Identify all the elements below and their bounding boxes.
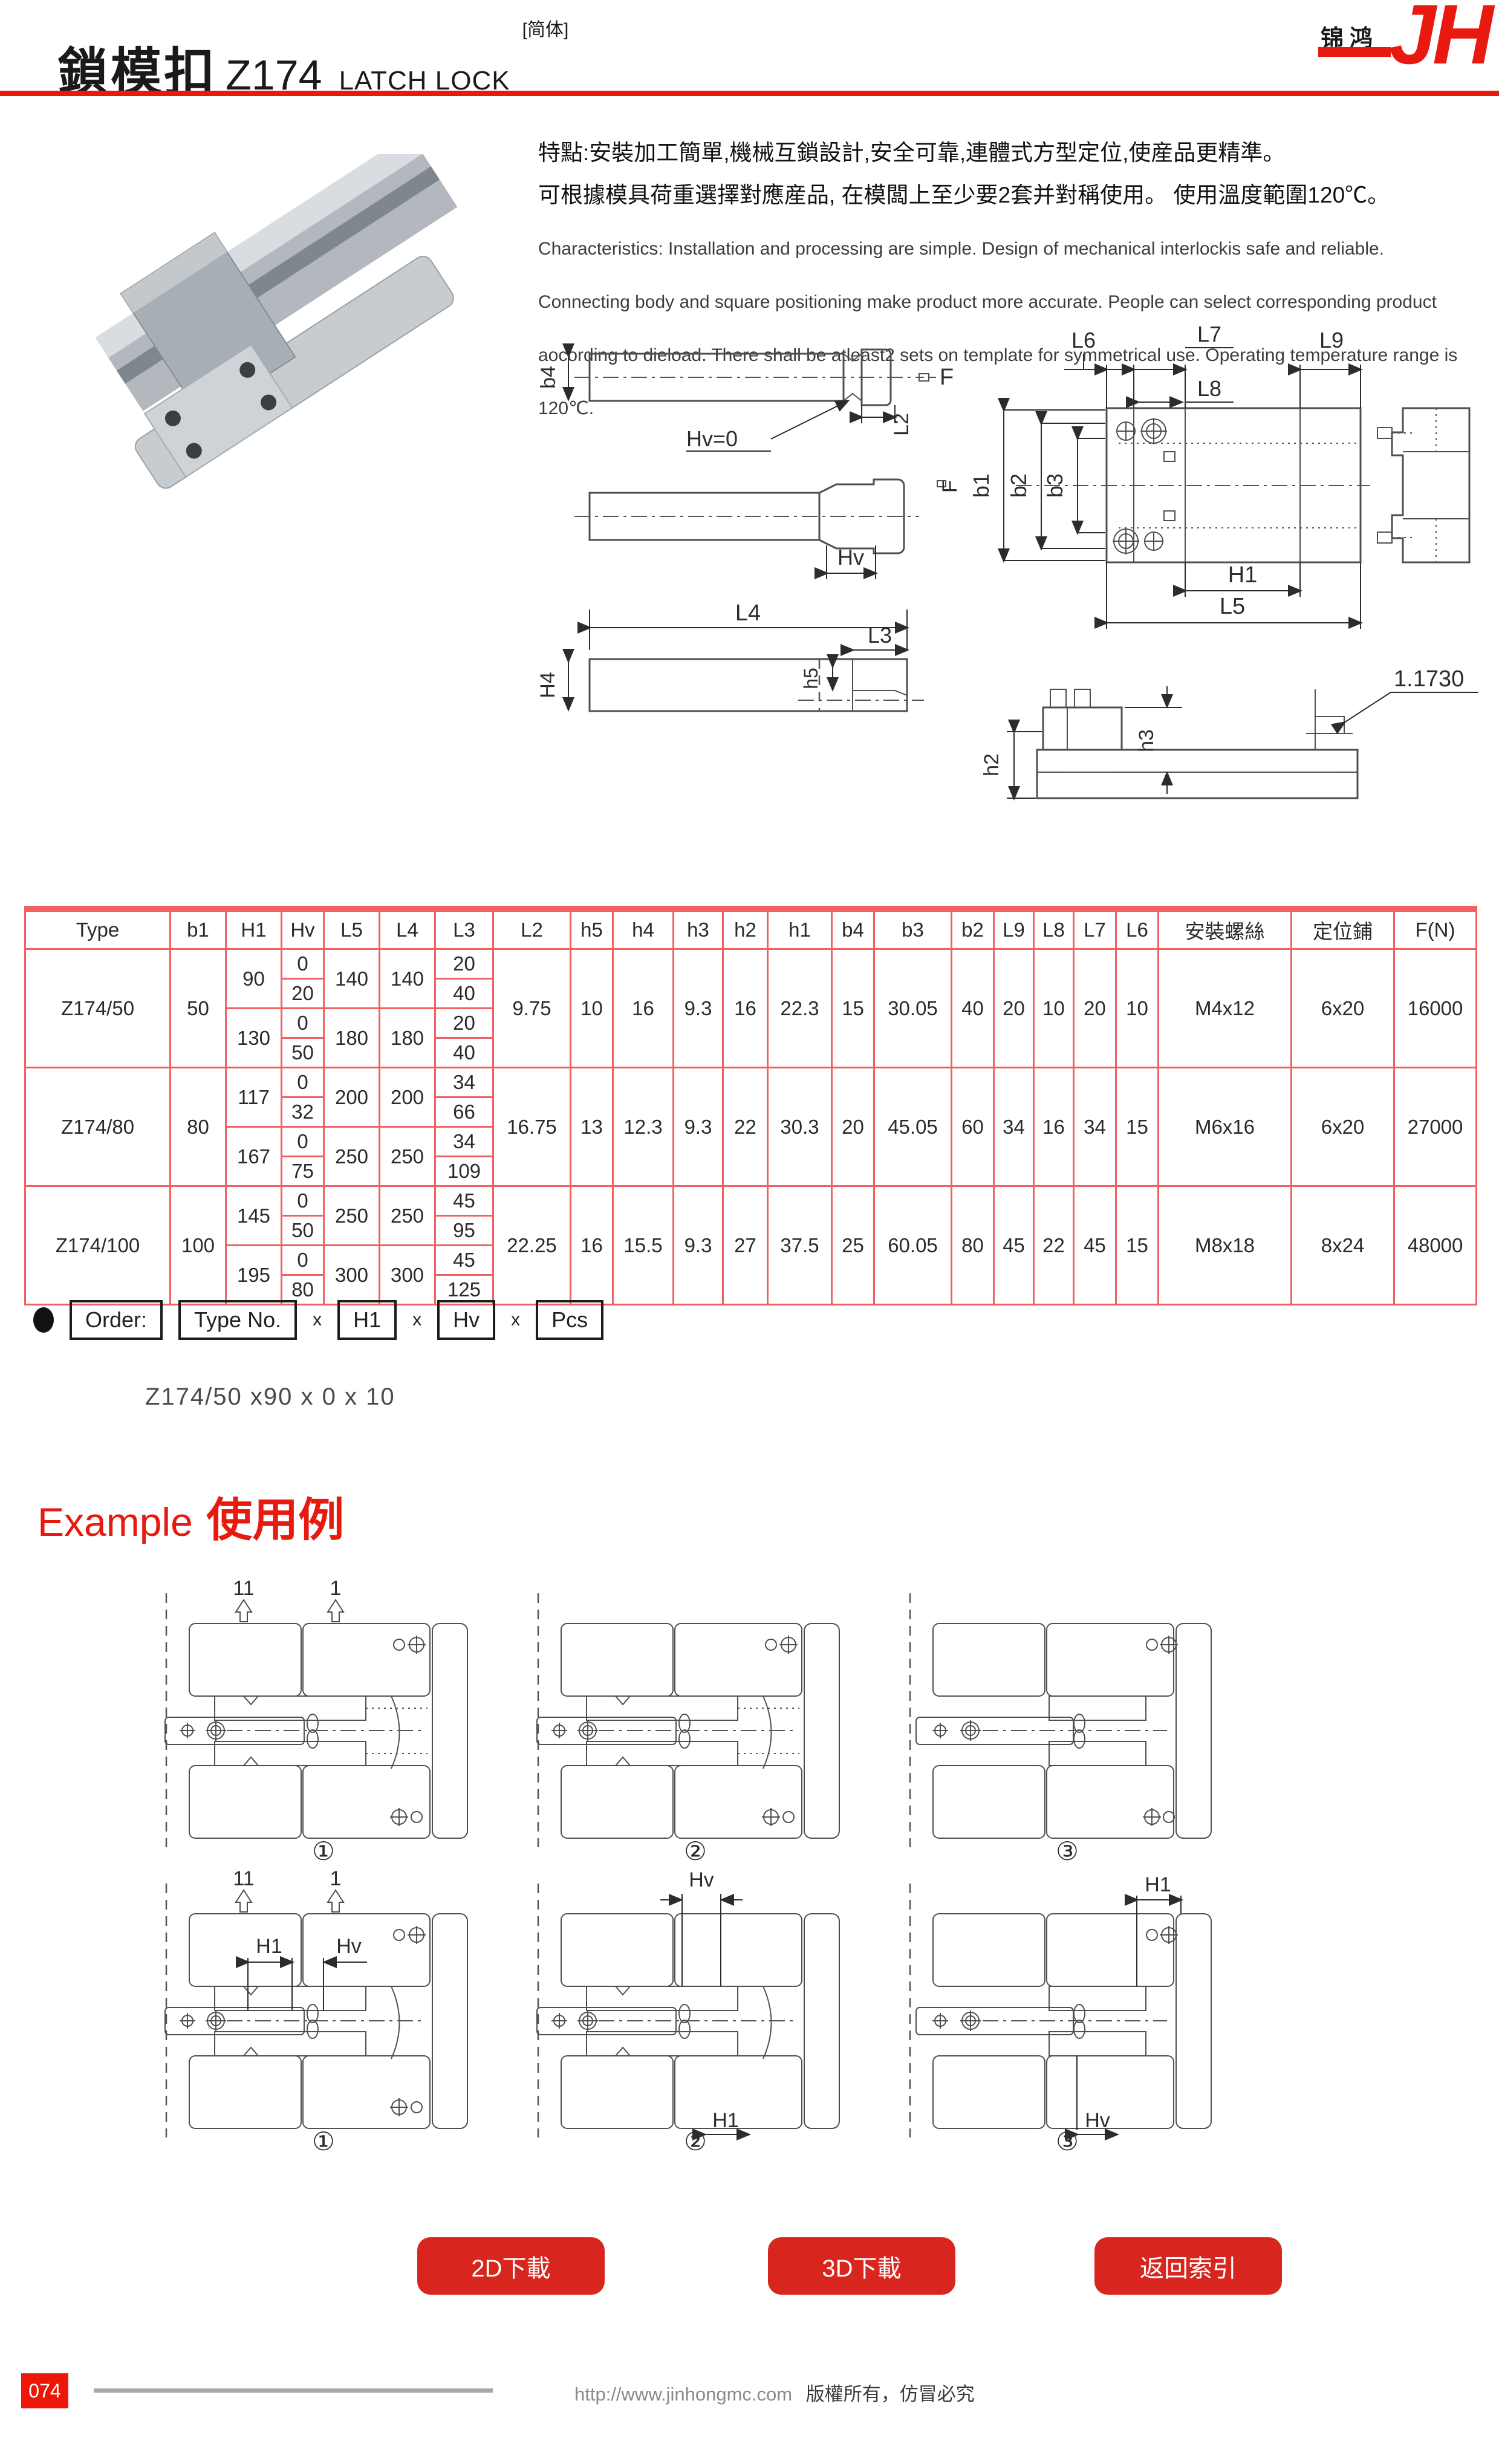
table-cell: 75: [282, 1157, 324, 1186]
table-cell: 167: [226, 1127, 282, 1186]
table-cell: 300: [380, 1246, 435, 1305]
table-cell: 250: [380, 1127, 435, 1186]
table-cell: 22.25: [493, 1186, 571, 1305]
characteristics-zh-line2: 可根據模具荷重選擇對應産品, 在模闆上至少要2套并對稱使用。 使用溫度範圍120…: [538, 174, 1472, 216]
column-header: h3: [674, 909, 723, 949]
table-cell: 100: [171, 1186, 226, 1305]
panel-number: ③: [1056, 1837, 1079, 1862]
dim-L8: L8: [1197, 376, 1221, 401]
table-row: Z174/5050900140140209.7510169.31622.3153…: [25, 949, 1477, 979]
column-header: h2: [723, 909, 768, 949]
table-cell: 130: [226, 1009, 282, 1068]
table-cell: 50: [282, 1038, 324, 1068]
table-cell: 45: [435, 1246, 493, 1275]
dim-L3: L3: [868, 623, 892, 648]
column-header: 安裝螺絲: [1159, 909, 1292, 949]
column-header: L2: [493, 909, 571, 949]
bullet-icon: [33, 1307, 54, 1333]
table-cell: 32: [282, 1097, 324, 1127]
order-box-type: Type No.: [178, 1300, 297, 1340]
table-cell: 60.05: [874, 1186, 952, 1305]
footer-text: http://www.jinhongmc.com 版權所有，仿冒必究: [574, 2379, 975, 2406]
table-cell: 16: [571, 1186, 613, 1305]
drawing-latch-views: b4 Hv=0 L2 F Hv L4 L3: [532, 320, 955, 804]
table-cell: 10: [1034, 949, 1074, 1068]
table-cell: 8x24: [1292, 1186, 1394, 1305]
table-cell: 34: [435, 1127, 493, 1157]
table-cell: 0: [282, 1246, 324, 1275]
table-cell: 0: [282, 949, 324, 979]
table-cell: Z174/50: [25, 949, 171, 1068]
dim-b1: b1: [969, 473, 993, 498]
table-cell: 20: [435, 1009, 493, 1038]
order-sep: x: [511, 1310, 520, 1330]
table-cell: 34: [435, 1068, 493, 1097]
label-11: 11: [233, 1868, 254, 1890]
table-cell: 15: [832, 949, 874, 1068]
column-header: b4: [832, 909, 874, 949]
table-cell: 20: [994, 949, 1034, 1068]
table-cell: M8x18: [1159, 1186, 1292, 1305]
example-panel-4: 11 1 H1 Hv ①: [154, 1868, 505, 2153]
table-cell: 13: [571, 1068, 613, 1186]
order-box-h1: H1: [337, 1300, 397, 1340]
table-cell: 200: [380, 1068, 435, 1127]
example-panel-3: ③: [898, 1578, 1249, 1862]
download-3d-button[interactable]: 3D下載: [768, 2237, 955, 2295]
table-cell: 95: [435, 1216, 493, 1246]
table-cell: 0: [282, 1186, 324, 1216]
table-cell: 40: [435, 1038, 493, 1068]
table-cell: 80: [171, 1068, 226, 1186]
characteristics-zh-line1: 特點:安裝加工簡單,機械互鎖設計,安全可靠,連體式方型定位,使産品更精準。: [538, 132, 1472, 174]
table-header-row: Typeb1H1HvL5L4L3L2h5h4h3h2h1b4b3b2L9L8L7…: [25, 909, 1477, 949]
table-cell: 16000: [1394, 949, 1477, 1068]
table-cell: 16: [613, 949, 674, 1068]
table-cell: 22: [1034, 1186, 1074, 1305]
example-panel-1: 11 1 ①: [154, 1578, 505, 1862]
column-header: 定位鋪: [1292, 909, 1394, 949]
table-cell: 250: [324, 1186, 380, 1246]
table-cell: 0: [282, 1009, 324, 1038]
column-header: L7: [1074, 909, 1116, 949]
brand-logo: JH 锦鸿: [1312, 4, 1494, 88]
table-cell: 45.05: [874, 1068, 952, 1186]
table-cell: 15: [1116, 1186, 1159, 1305]
table-cell: 45: [994, 1186, 1034, 1305]
order-example: Z174/50 x90 x 0 x 10: [145, 1383, 395, 1411]
spec-table: Typeb1H1HvL5L4L3L2h5h4h3h2h1b4b3b2L9L8L7…: [24, 906, 1477, 1305]
table-cell: 15: [1116, 1068, 1159, 1186]
drawing-body-view: b1 b2 b3 F L6 L7 L8 L9: [925, 311, 1499, 635]
download-2d-button[interactable]: 2D下載: [417, 2237, 605, 2295]
dim-L9: L9: [1319, 328, 1344, 353]
order-box-hv: Hv: [437, 1300, 495, 1340]
column-header: h4: [613, 909, 674, 949]
header-divider: [0, 91, 1499, 96]
table-cell: 80: [952, 1186, 994, 1305]
column-header: h5: [571, 909, 613, 949]
panel-number: ①: [312, 2127, 335, 2153]
table-cell: 6x20: [1292, 949, 1394, 1068]
dim-h3: h3: [1135, 729, 1158, 752]
column-header: b2: [952, 909, 994, 949]
table-cell: 117: [226, 1068, 282, 1127]
order-sep: x: [412, 1310, 421, 1330]
order-box: Order:: [70, 1300, 163, 1340]
dim-L2: L2: [890, 413, 913, 436]
footer-url[interactable]: http://www.jinhongmc.com: [574, 2384, 792, 2405]
table-cell: 37.5: [768, 1186, 832, 1305]
drawing-section-view: h3 h2 1.1730: [946, 632, 1499, 822]
table-cell: 20: [282, 979, 324, 1009]
page-number-badge: 074: [21, 2373, 68, 2408]
catalog-page: 鎖模扣Z174LATCH LOCK[简体] JH 锦鸿 特點:安裝加工簡單,機械…: [0, 0, 1499, 2464]
label-1: 1: [330, 1868, 342, 1890]
table-cell: 20: [1074, 949, 1116, 1068]
table-cell: 16: [1034, 1068, 1074, 1186]
dim-Hv: Hv: [837, 545, 864, 570]
table-cell: 45: [435, 1186, 493, 1216]
column-header: h1: [768, 909, 832, 949]
panel-number: ①: [312, 1837, 335, 1862]
logo-bar: [1318, 47, 1391, 57]
dim-L7: L7: [1197, 322, 1221, 346]
order-format: Order: Type No. x H1 x Hv x Pcs: [33, 1300, 603, 1340]
column-header: H1: [226, 909, 282, 949]
table-cell: 30.3: [768, 1068, 832, 1186]
table-cell: 50: [282, 1216, 324, 1246]
footer-copyright: 版權所有，仿冒必究: [806, 2384, 975, 2405]
logo-jh-text: JH: [1389, 0, 1490, 83]
table-cell: 66: [435, 1097, 493, 1127]
dim-F2: F: [938, 480, 961, 493]
table-cell: 180: [380, 1009, 435, 1068]
example-heading: Example 使用例: [37, 1483, 344, 1549]
table-cell: 48000: [1394, 1186, 1477, 1305]
dim-Hv-label: Hv: [1085, 2109, 1110, 2132]
table-cell: 22.3: [768, 949, 832, 1068]
label-1: 1: [330, 1578, 342, 1600]
table-cell: 25: [832, 1186, 874, 1305]
column-header: L8: [1034, 909, 1074, 949]
order-sep: x: [313, 1310, 322, 1330]
dim-H1-label: H1: [256, 1935, 282, 1958]
table-cell: 10: [1116, 949, 1159, 1068]
dim-L6: L6: [1071, 328, 1096, 353]
table-cell: 15.5: [613, 1186, 674, 1305]
table-cell: 9.75: [493, 949, 571, 1068]
table-cell: 200: [324, 1068, 380, 1127]
table-cell: Z174/80: [25, 1068, 171, 1186]
example-heading-en: Example: [37, 1500, 193, 1544]
example-panel-6: H1 Hv ③: [898, 1868, 1249, 2153]
table-cell: 0: [282, 1127, 324, 1157]
table-cell: 22: [723, 1068, 768, 1186]
column-header: L5: [324, 909, 380, 949]
dim-H1-label: H1: [1145, 1873, 1171, 1896]
panel-number: ③: [1056, 2127, 1079, 2153]
table-cell: 45: [1074, 1186, 1116, 1305]
dim-b3: b3: [1042, 473, 1067, 498]
table-cell: 10: [571, 949, 613, 1068]
table-cell: 9.3: [674, 949, 723, 1068]
table-cell: 250: [380, 1186, 435, 1246]
table-cell: 6x20: [1292, 1068, 1394, 1186]
dim-b2: b2: [1006, 473, 1031, 498]
dim-hv0: Hv=0: [686, 426, 738, 451]
table-cell: 90: [226, 949, 282, 1009]
order-box-pcs: Pcs: [536, 1300, 603, 1340]
table-cell: 140: [380, 949, 435, 1009]
table-cell: 27000: [1394, 1068, 1477, 1186]
table-cell: 9.3: [674, 1186, 723, 1305]
surface-note: 1.1730: [1394, 666, 1464, 692]
dim-L4: L4: [735, 600, 761, 626]
table-cell: 109: [435, 1157, 493, 1186]
table-cell: 27: [723, 1186, 768, 1305]
table-cell: 12.3: [613, 1068, 674, 1186]
table-cell: 250: [324, 1127, 380, 1186]
table-cell: 34: [994, 1068, 1034, 1186]
table-row: Z174/10010014502502504522.251615.59.3273…: [25, 1186, 1477, 1216]
table-cell: 40: [435, 979, 493, 1009]
table-row: Z174/808011702002003416.751312.39.32230.…: [25, 1068, 1477, 1097]
table-cell: 16.75: [493, 1068, 571, 1186]
table-cell: 300: [324, 1246, 380, 1305]
product-photo: [33, 154, 496, 508]
example-panel-2: ②: [526, 1578, 877, 1862]
table-cell: 145: [226, 1186, 282, 1246]
table-cell: M4x12: [1159, 949, 1292, 1068]
footer-divider: [94, 2388, 493, 2393]
table-cell: 60: [952, 1068, 994, 1186]
table-cell: 34: [1074, 1068, 1116, 1186]
table-cell: 195: [226, 1246, 282, 1305]
column-header: L6: [1116, 909, 1159, 949]
panel-number: ②: [684, 1837, 707, 1862]
dim-H4: H4: [536, 672, 559, 698]
table-cell: 20: [435, 949, 493, 979]
dim-L5: L5: [1220, 594, 1245, 619]
table-cell: 180: [324, 1009, 380, 1068]
dim-Hv-label: Hv: [336, 1935, 362, 1958]
table-cell: 50: [171, 949, 226, 1068]
column-header: F(N): [1394, 909, 1477, 949]
column-header: L9: [994, 909, 1034, 949]
column-header: L3: [435, 909, 493, 949]
language-tag: [简体]: [522, 20, 569, 40]
table-cell: 30.05: [874, 949, 952, 1068]
table-cell: 140: [324, 949, 380, 1009]
table-cell: M6x16: [1159, 1068, 1292, 1186]
dim-H1-label: H1: [712, 2109, 738, 2132]
column-header: b3: [874, 909, 952, 949]
panel-number: ②: [684, 2127, 707, 2153]
dim-h2: h2: [980, 753, 1003, 776]
table-cell: 9.3: [674, 1068, 723, 1186]
column-header: b1: [171, 909, 226, 949]
table-cell: 16: [723, 949, 768, 1068]
example-heading-zh: 使用例: [206, 1495, 344, 1546]
label-11: 11: [233, 1578, 254, 1600]
table-cell: 40: [952, 949, 994, 1068]
column-header: Type: [25, 909, 171, 949]
table-cell: 20: [832, 1068, 874, 1186]
dim-Hv-label: Hv: [689, 1868, 714, 1891]
example-panel-5: Hv H1 ②: [526, 1868, 877, 2153]
back-to-index-button[interactable]: 返回索引: [1094, 2237, 1282, 2295]
table-cell: Z174/100: [25, 1186, 171, 1305]
dim-H1: H1: [1228, 562, 1258, 588]
column-header: L4: [380, 909, 435, 949]
column-header: Hv: [282, 909, 324, 949]
dim-h5: h5: [800, 668, 822, 689]
dim-b4: b4: [537, 366, 560, 389]
table-cell: 0: [282, 1068, 324, 1097]
